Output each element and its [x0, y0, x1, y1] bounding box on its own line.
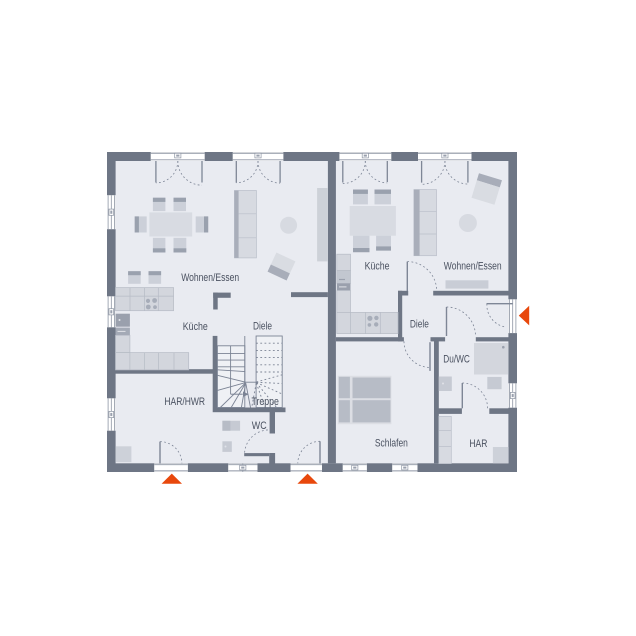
svg-text:Diele: Diele: [253, 320, 272, 332]
svg-text:Du/WC: Du/WC: [443, 354, 470, 366]
svg-text:Treppe: Treppe: [251, 396, 279, 408]
svg-text:Diele: Diele: [410, 318, 429, 330]
svg-text:Wohnen/Essen: Wohnen/Essen: [181, 272, 239, 284]
svg-text:Küche: Küche: [183, 321, 208, 333]
svg-text:Wohnen/Essen: Wohnen/Essen: [444, 261, 502, 273]
svg-text:WC: WC: [252, 420, 267, 432]
svg-text:HAR: HAR: [469, 438, 487, 450]
svg-text:HAR/HWR: HAR/HWR: [164, 396, 205, 408]
svg-text:Küche: Küche: [365, 261, 390, 273]
svg-text:Schlafen: Schlafen: [375, 438, 408, 450]
